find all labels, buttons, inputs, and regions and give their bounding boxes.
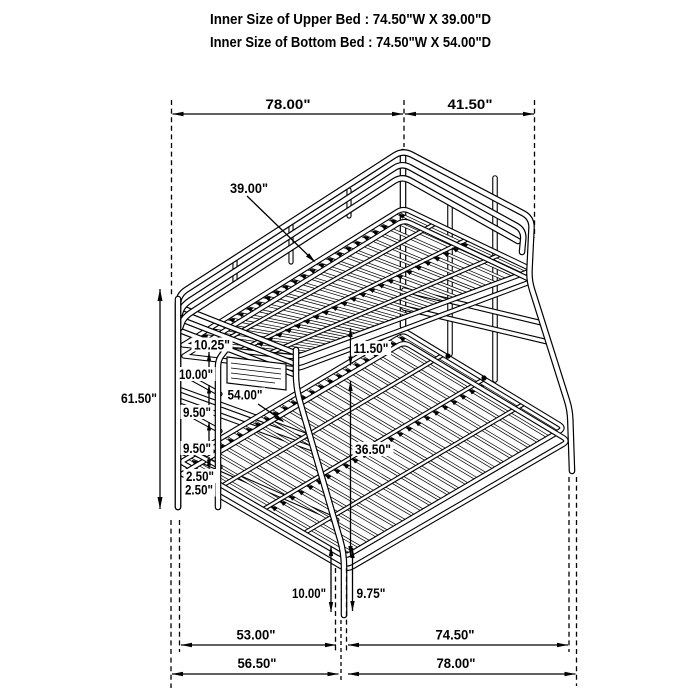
- svg-text:9.50": 9.50": [183, 441, 211, 456]
- svg-text:56.50": 56.50": [238, 656, 277, 671]
- svg-text:54.00": 54.00": [228, 387, 263, 402]
- svg-text:61.50": 61.50": [121, 391, 157, 406]
- svg-text:Inner Size of Bottom Bed : 74.: Inner Size of Bottom Bed : 74.50"W X 54.…: [210, 34, 491, 51]
- svg-text:11.50": 11.50": [354, 341, 389, 356]
- svg-text:2.50": 2.50": [185, 482, 213, 497]
- svg-text:74.50": 74.50": [436, 627, 475, 642]
- svg-text:10.00": 10.00": [179, 367, 213, 382]
- svg-text:9.50": 9.50": [183, 405, 211, 420]
- svg-text:Inner Size of Upper Bed : 74.5: Inner Size of Upper Bed : 74.50"W X 39.0…: [210, 11, 491, 28]
- svg-text:10.00": 10.00": [292, 586, 326, 601]
- svg-text:10.25": 10.25": [194, 337, 230, 352]
- svg-text:78.00": 78.00": [266, 97, 311, 112]
- svg-text:53.00": 53.00": [237, 627, 276, 642]
- svg-text:9.75": 9.75": [357, 586, 386, 601]
- svg-text:78.00": 78.00": [437, 656, 476, 671]
- svg-text:39.00": 39.00": [230, 181, 268, 196]
- svg-text:36.50": 36.50": [355, 442, 391, 457]
- svg-text:41.50": 41.50": [448, 97, 493, 112]
